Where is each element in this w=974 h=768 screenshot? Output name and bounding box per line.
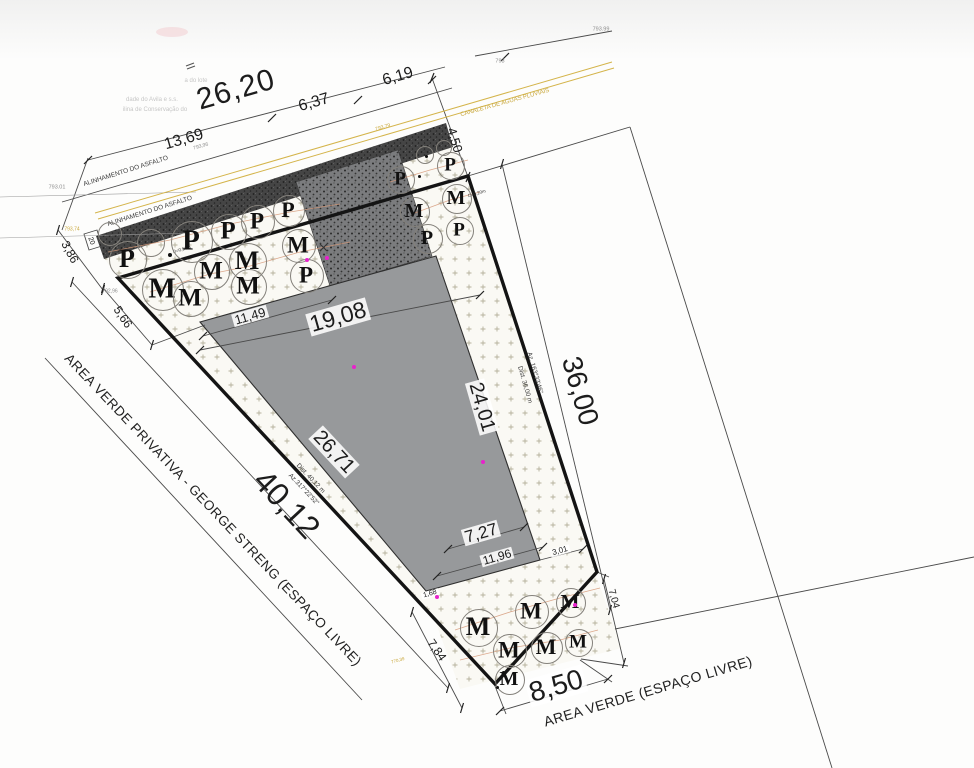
tree-species-letter: P [281, 199, 294, 221]
tree-circle [436, 140, 452, 156]
tree-species-letter: M [447, 188, 466, 208]
ghost-text-2: dade do Avila e s.s. [126, 97, 178, 103]
elev-793-01: 793.01 [49, 185, 66, 191]
tree-species-letter: P [119, 246, 135, 272]
tree-species-letter: P [453, 221, 465, 240]
ghost-text-1: a do lote [184, 78, 207, 84]
survey-point-magenta [305, 258, 309, 262]
survey-point-magenta [573, 603, 577, 607]
tree-species-letter: P [394, 170, 406, 189]
tree-species-letter: M [569, 633, 587, 652]
tree-circle [137, 229, 165, 257]
scan-artifacts [156, 27, 195, 69]
tree-species-letter: M [199, 259, 223, 284]
tree-species-letter: M [287, 234, 309, 257]
tree-circle [98, 222, 122, 246]
tree-species-letter: P [299, 264, 313, 287]
tree-species-letter: M [236, 274, 260, 299]
survey-point-black [425, 155, 428, 158]
survey-point-black [496, 686, 499, 689]
survey-point-black [502, 671, 505, 674]
site-plan-canvas: 26,206,376,1913,694,503,865,6611,4919,08… [0, 0, 974, 768]
tree-species-letter: P [220, 219, 235, 244]
survey-point-black [168, 253, 172, 257]
tree-species-letter: M [466, 614, 491, 640]
tree-species-letter: M [561, 592, 580, 612]
tree-species-letter: P [421, 228, 433, 248]
tree-species-letter: M [148, 275, 175, 304]
survey-point-magenta [435, 595, 439, 599]
tree-species-letter: P [182, 227, 200, 256]
survey-point-magenta [481, 460, 485, 464]
ghost-text-3: ilina de Conservação do [123, 107, 187, 113]
survey-point-magenta [325, 256, 329, 260]
tree-species-letter: M [405, 201, 424, 221]
tree-species-letter: P [444, 156, 456, 175]
survey-point-black [418, 175, 421, 178]
tree-species-letter: P [250, 210, 264, 233]
tree-species-letter: M [520, 600, 542, 623]
elev-793-74: 793,74 [64, 228, 79, 233]
tree-species-letter: M [536, 636, 557, 658]
elev-792-96: 792,96 [102, 290, 117, 295]
survey-point-magenta [352, 365, 356, 369]
tree-species-letter: M [498, 639, 520, 662]
tree-species-letter: M [178, 286, 202, 311]
elev-793-99: 793.99 [593, 27, 610, 33]
elev-793: 793 [495, 59, 504, 65]
